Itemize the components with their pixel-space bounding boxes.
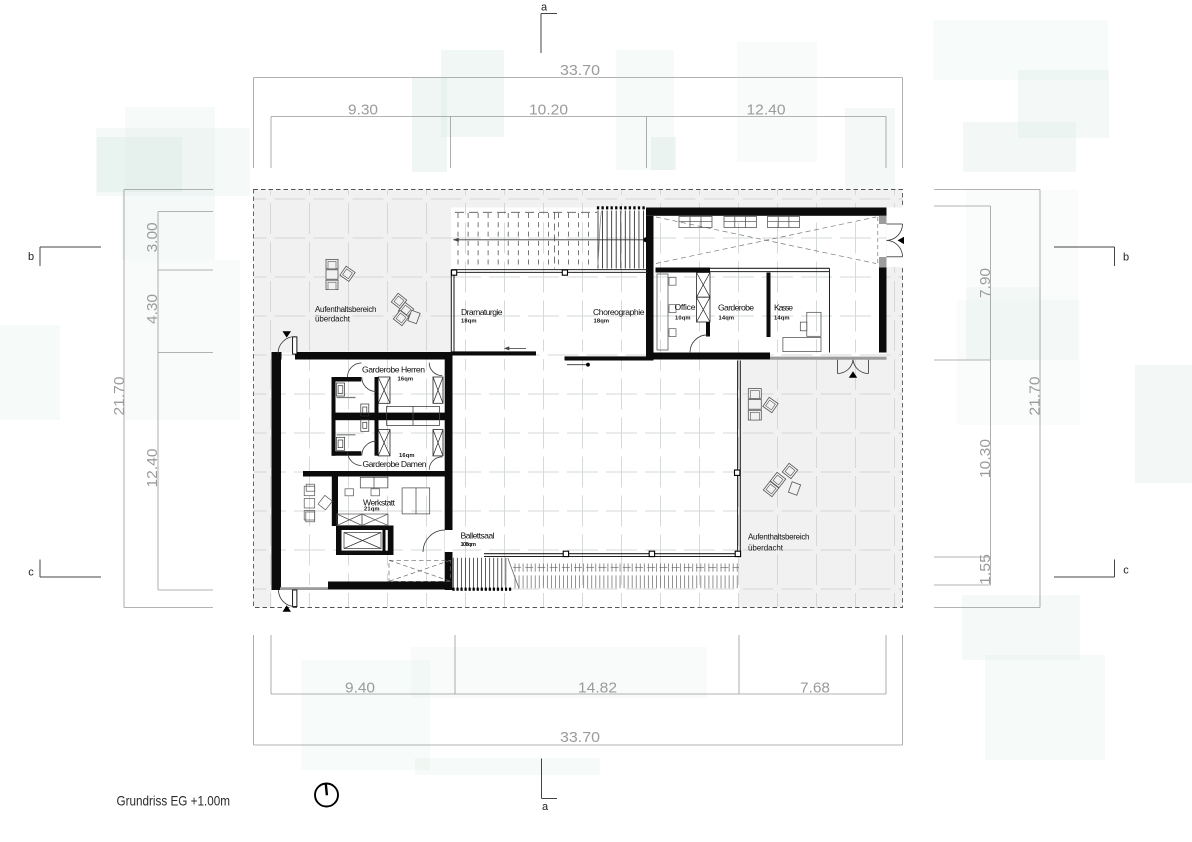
svg-text:Garderobe Damen: Garderobe Damen — [363, 459, 427, 469]
svg-text:33.70: 33.70 — [560, 729, 600, 746]
svg-text:10.30: 10.30 — [977, 439, 994, 478]
svg-text:14.82: 14.82 — [578, 680, 617, 697]
svg-text:7.90: 7.90 — [977, 268, 994, 298]
svg-text:Grundriss EG +1.00m: Grundriss EG +1.00m — [117, 793, 231, 809]
svg-text:c: c — [28, 567, 34, 579]
svg-text:a: a — [542, 801, 549, 813]
svg-text:Garderobe Herren: Garderobe Herren — [362, 365, 425, 375]
svg-text:a: a — [541, 2, 548, 14]
svg-text:18qm: 18qm — [594, 319, 610, 325]
svg-text:108qm: 108qm — [461, 542, 477, 548]
svg-text:c: c — [1123, 565, 1129, 577]
svg-text:b: b — [1123, 252, 1129, 264]
svg-text:7.68: 7.68 — [800, 680, 830, 697]
svg-text:9.40: 9.40 — [345, 680, 375, 697]
svg-text:Aufenthaltsbereich: Aufenthaltsbereich — [315, 305, 377, 314]
svg-text:33.70: 33.70 — [560, 62, 600, 79]
svg-text:3.00: 3.00 — [144, 222, 161, 252]
svg-text:21qm: 21qm — [364, 507, 380, 513]
svg-text:Aufenthaltsbereich: Aufenthaltsbereich — [748, 532, 810, 541]
svg-text:Choreographie: Choreographie — [593, 307, 645, 317]
svg-text:überdacht: überdacht — [315, 314, 351, 323]
svg-text:b: b — [28, 251, 34, 263]
svg-text:21.70: 21.70 — [111, 377, 128, 416]
svg-text:16qm: 16qm — [398, 377, 414, 383]
svg-text:1.55: 1.55 — [977, 554, 994, 585]
svg-text:18qm: 18qm — [461, 319, 477, 325]
svg-text:10qm: 10qm — [675, 316, 691, 322]
svg-text:überdacht: überdacht — [748, 543, 784, 552]
svg-text:10.20: 10.20 — [529, 102, 568, 119]
svg-text:9.30: 9.30 — [348, 102, 378, 119]
svg-text:14qm: 14qm — [774, 316, 790, 322]
svg-text:Dramaturgie: Dramaturgie — [461, 307, 503, 317]
svg-text:14qm: 14qm — [719, 316, 735, 322]
svg-text:Garderobe: Garderobe — [718, 303, 754, 313]
svg-text:12.40: 12.40 — [144, 449, 161, 488]
svg-text:Office: Office — [675, 302, 696, 312]
svg-text:4.30: 4.30 — [144, 294, 161, 324]
svg-text:12.40: 12.40 — [747, 102, 786, 119]
svg-text:21.70: 21.70 — [1027, 377, 1044, 416]
svg-text:Kasse: Kasse — [774, 303, 793, 313]
svg-text:Ballettsaal: Ballettsaal — [461, 531, 495, 541]
